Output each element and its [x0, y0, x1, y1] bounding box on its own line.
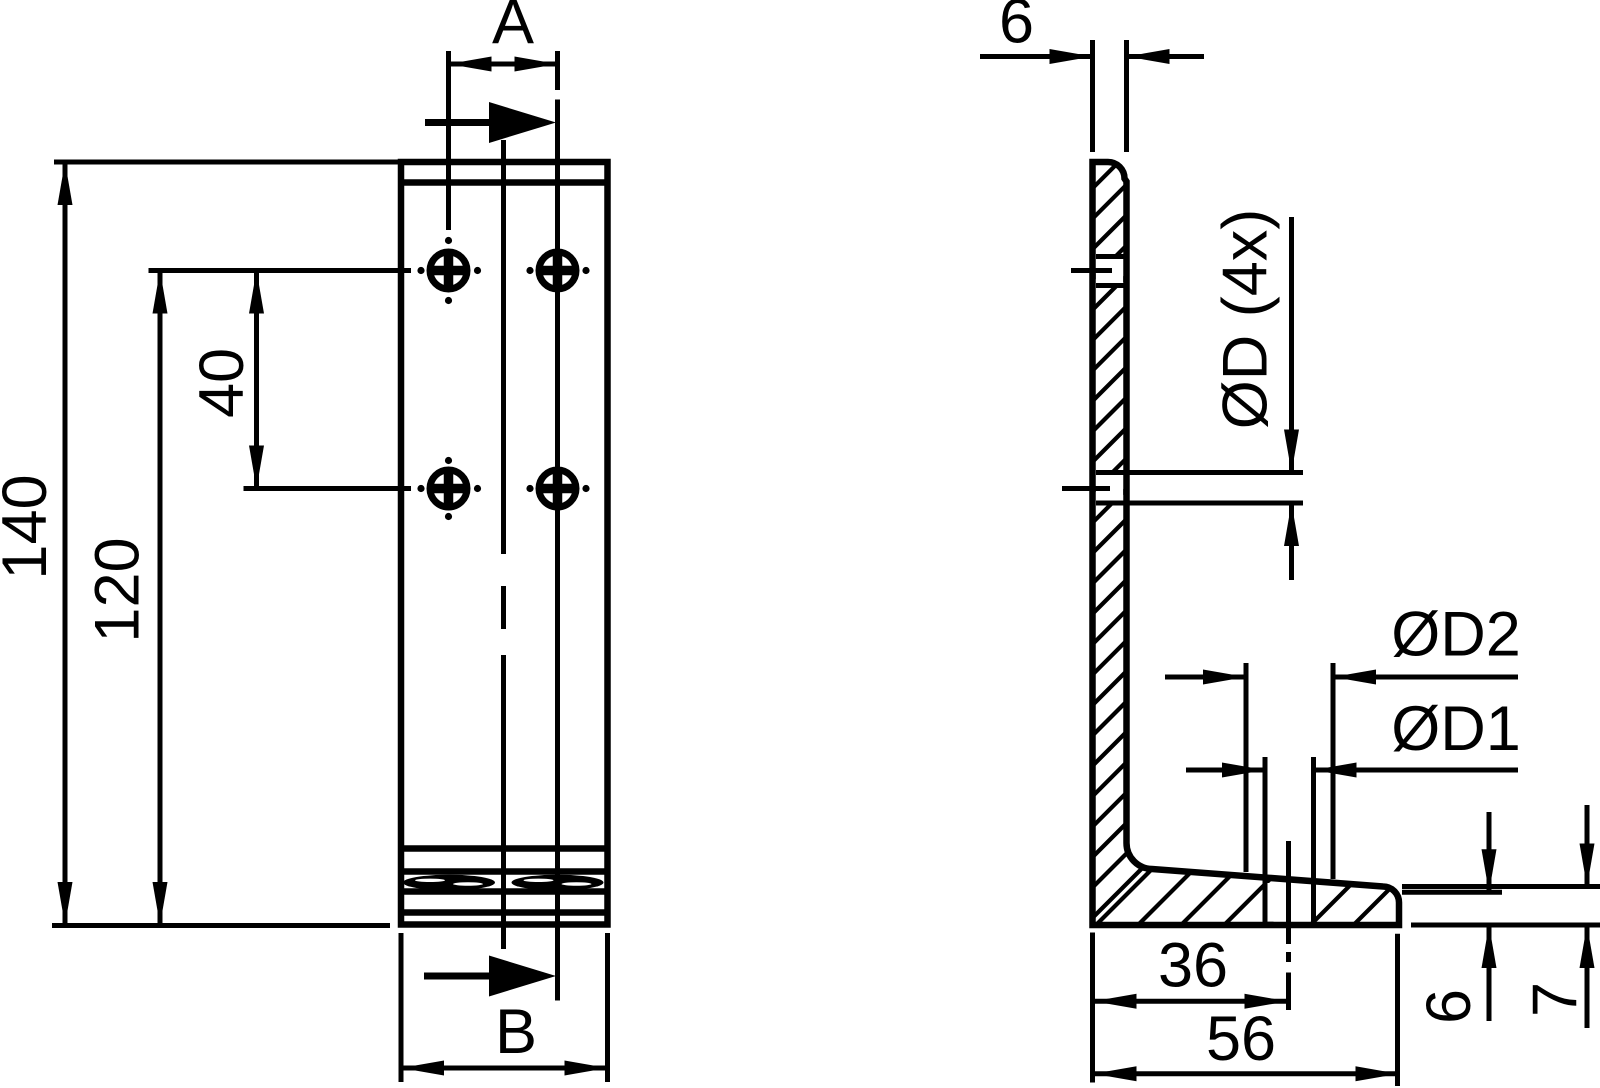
svg-text:56: 56	[1206, 1004, 1276, 1074]
svg-text:A: A	[492, 0, 534, 57]
svg-text:120: 120	[83, 537, 153, 642]
svg-text:B: B	[495, 997, 537, 1067]
svg-text:ØD (4x): ØD (4x)	[1211, 209, 1281, 430]
svg-text:40: 40	[187, 348, 257, 418]
svg-text:ØD1: ØD1	[1391, 694, 1521, 764]
svg-text:7: 7	[1521, 982, 1591, 1017]
svg-text:140: 140	[0, 474, 60, 579]
svg-text:6: 6	[999, 0, 1034, 57]
svg-text:6: 6	[1414, 989, 1484, 1024]
svg-text:ØD2: ØD2	[1391, 600, 1521, 670]
svg-text:36: 36	[1158, 931, 1228, 1001]
